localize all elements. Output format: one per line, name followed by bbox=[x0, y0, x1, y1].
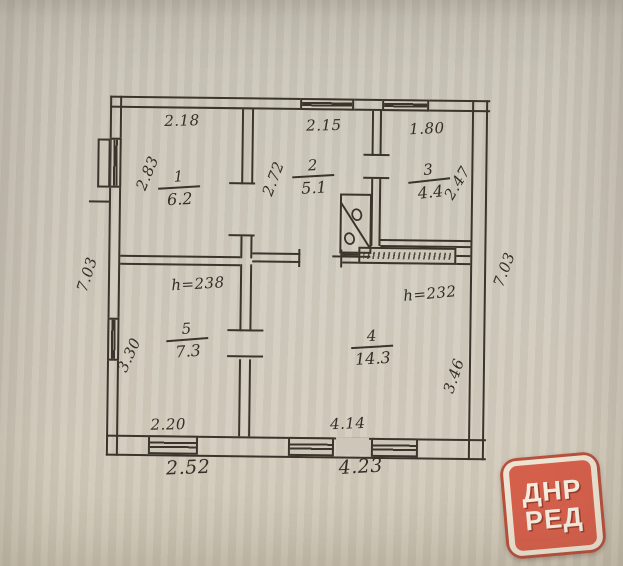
watermark-badge: ДНР РЕД bbox=[499, 451, 607, 560]
door-jamb-tick bbox=[298, 249, 300, 267]
height-note-room4: h=232 bbox=[389, 281, 470, 306]
room-5-area: 7.3 bbox=[157, 339, 218, 362]
room-2-area: 5.1 bbox=[283, 176, 344, 198]
dim-left-total: 7.03 bbox=[71, 248, 103, 301]
watermark-border-ring: ДНР РЕД bbox=[502, 454, 604, 557]
dim-right-room4: 3.46 bbox=[437, 349, 470, 402]
wall-room2-room3-upper bbox=[372, 111, 383, 156]
height-note-room5: h=238 bbox=[157, 272, 238, 295]
room-2-number: 2 bbox=[291, 155, 334, 178]
wall-tick bbox=[89, 200, 109, 202]
window-symbol-bottom-room5 bbox=[148, 435, 198, 455]
window-symbol-left-room5 bbox=[107, 318, 120, 361]
door-jamb-tick bbox=[227, 329, 263, 331]
dim-right-total: 7.03 bbox=[487, 242, 522, 297]
outer-wall-right bbox=[468, 100, 488, 460]
room-4-label: 4 14.3 bbox=[336, 324, 408, 370]
window-symbol-left-room1 bbox=[109, 138, 122, 188]
door-jamb-tick bbox=[363, 177, 389, 179]
stove-symbol bbox=[330, 188, 383, 263]
watermark-core: ДНР РЕД bbox=[508, 460, 597, 552]
watermark-line-2: РЕД bbox=[524, 503, 584, 536]
dim-top-room1: 2.18 bbox=[152, 111, 212, 130]
scanned-floor-plan-photo: 1 6.2 2 5.1 3 4.4 4 14.3 5 7.3 h=238 h=2… bbox=[0, 0, 623, 566]
wall-room1-room2-lower bbox=[240, 236, 252, 258]
wall-room5-room4-upper bbox=[239, 264, 252, 331]
room-1-area: 6.2 bbox=[149, 188, 210, 210]
window-symbol-top-room3 bbox=[382, 99, 429, 112]
window-symbol-top-room2 bbox=[300, 98, 354, 111]
dim-bottom-room4-inner: 4.14 bbox=[310, 413, 386, 434]
room-1-number: 1 bbox=[157, 166, 200, 189]
wall-middle-right-a bbox=[252, 252, 300, 263]
door-jamb-tick bbox=[227, 355, 263, 357]
wall-room1-room2-upper bbox=[241, 109, 254, 184]
dim-top-room3: 1.80 bbox=[397, 118, 458, 138]
door-jamb-tick bbox=[229, 234, 255, 236]
room-4-area: 14.3 bbox=[337, 347, 408, 370]
door-jamb-tick bbox=[229, 182, 255, 184]
dim-bottom-room5-outer: 2.52 bbox=[145, 455, 231, 480]
dim-top-room2: 2.15 bbox=[294, 116, 354, 135]
entrance-door-opening bbox=[336, 437, 369, 454]
room-2-label: 2 5.1 bbox=[282, 153, 344, 198]
window-symbol-bottom-room4-left bbox=[288, 437, 334, 457]
wall-middle-left bbox=[120, 255, 240, 266]
dim-bottom-room4-outer: 4.23 bbox=[315, 453, 406, 480]
chimney-pilaster bbox=[97, 139, 111, 188]
room-5-label: 5 7.3 bbox=[156, 316, 219, 362]
room-5-number: 5 bbox=[165, 318, 208, 342]
dim-bottom-room5-inner: 2.20 bbox=[133, 415, 203, 435]
wall-room5-room4-lower bbox=[238, 359, 251, 436]
room-4-number: 4 bbox=[350, 326, 393, 349]
door-jamb-tick bbox=[364, 154, 390, 156]
